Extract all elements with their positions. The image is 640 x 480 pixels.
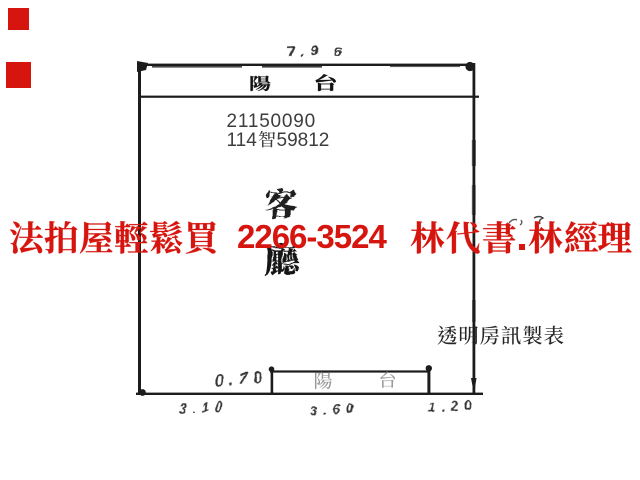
- svg-text:3.10: 3.10: [178, 398, 229, 417]
- svg-text:114: 114: [227, 130, 258, 151]
- svg-text:1.20: 1.20: [427, 396, 477, 415]
- svg-text:7.9: 7.9: [286, 42, 324, 61]
- svg-text:21150090: 21150090: [227, 111, 317, 132]
- svg-text:59812: 59812: [277, 130, 330, 151]
- svg-text:0.70: 0.70: [214, 369, 268, 390]
- svg-text:6: 6: [334, 44, 342, 59]
- svg-text:3.60: 3.60: [309, 400, 360, 419]
- svg-text:2266-3524: 2266-3524: [237, 218, 387, 255]
